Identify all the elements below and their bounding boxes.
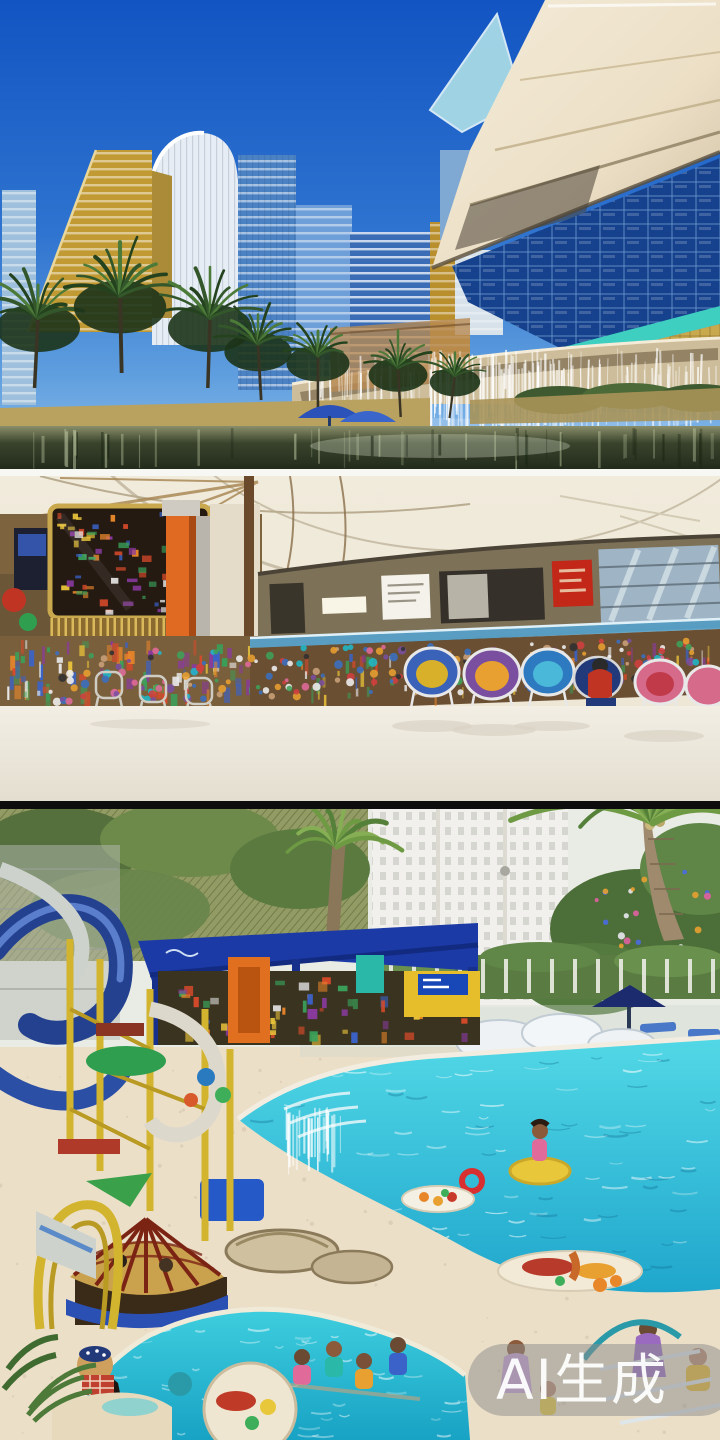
white-sign (381, 574, 431, 620)
picnic-basket (77, 1346, 114, 1395)
panel-divider-light (0, 469, 720, 476)
ai-generated-watermark: AI生成 (468, 1344, 720, 1416)
red-poster (552, 560, 594, 608)
resort-towers-art (0, 0, 720, 469)
ai-generated-photo-collage: AI生成 (0, 0, 720, 1440)
tile-floor (0, 706, 720, 801)
lit-sign-strip (322, 596, 367, 614)
panel-divider-dark (0, 801, 720, 809)
photo-resort-towers (0, 0, 720, 469)
mall-concourse-art (0, 476, 720, 801)
photo-mall-concourse (0, 476, 720, 801)
watermark-text: AI生成 (496, 1353, 668, 1408)
